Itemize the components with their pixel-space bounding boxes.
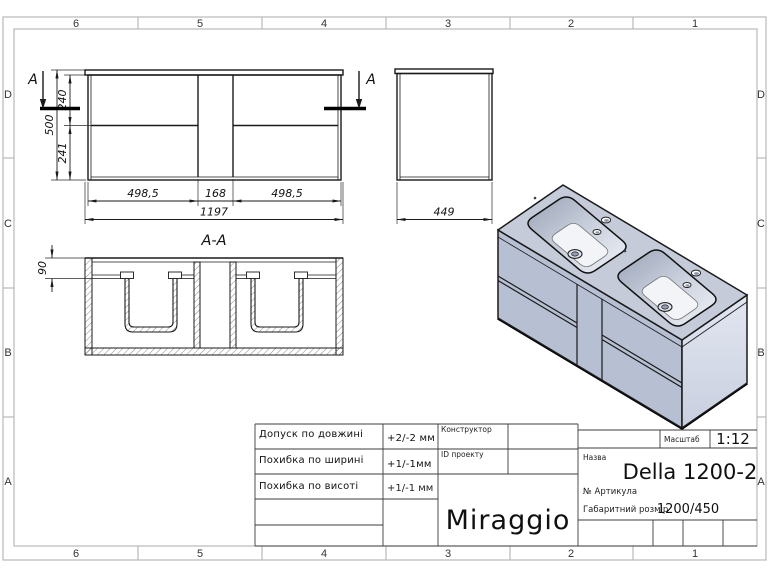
- zone-label: 6: [73, 548, 79, 560]
- scale-value: 1:12: [716, 430, 750, 448]
- drawing-canvas: 6 5 4 3 2 1 6 5 4 3 2 1 D C B A D C B A: [0, 0, 770, 578]
- section-label-left: A: [27, 72, 38, 88]
- dim-depth: 449: [434, 206, 455, 219]
- dim-width-total: 1197: [200, 206, 228, 219]
- zone-label: A: [4, 476, 12, 488]
- dim-basin-depth: 90: [36, 261, 49, 275]
- tolerance-value: +1/-1мм: [387, 459, 432, 470]
- zone-label: B: [4, 347, 11, 359]
- title-block: Допуск по довжині +2/-2 мм Похибка по ши…: [255, 424, 757, 546]
- section-dimension: 90: [36, 245, 92, 292]
- section-view: A-A: [36, 233, 343, 355]
- zone-label: 3: [445, 548, 451, 560]
- tolerance-label: Похибка по ширині: [259, 454, 364, 466]
- scale-label: Масштаб: [664, 435, 700, 444]
- dimensions-label: Габаритний розмір: [583, 505, 668, 515]
- tolerance-label: Допуск по довжині: [259, 428, 363, 440]
- front-view: [85, 70, 343, 180]
- project-id-label: ID проекту: [441, 450, 484, 459]
- zone-label: 4: [321, 548, 327, 560]
- dim-width-mid: 168: [205, 187, 226, 200]
- zone-label: A: [757, 476, 765, 488]
- constructor-label: Конструктор: [441, 425, 492, 434]
- tolerance-label: Похибка по висоті: [259, 480, 358, 492]
- article-label: № Артикула: [583, 487, 637, 497]
- tolerance-value: +1/-1 мм: [387, 483, 433, 494]
- zone-label: 4: [321, 18, 327, 30]
- zone-label: 1: [692, 18, 698, 30]
- zone-label: D: [757, 89, 765, 101]
- zone-label: 3: [445, 18, 451, 30]
- basin-section-left: [121, 272, 182, 332]
- dim-height-total: 500: [43, 115, 56, 136]
- tolerance-value: +2/-2 мм: [387, 433, 435, 444]
- name-label: Назва: [583, 453, 606, 462]
- zone-label: C: [4, 218, 12, 230]
- side-view: 449: [395, 69, 493, 224]
- section-view-title: A-A: [200, 233, 226, 249]
- section-label-right: A: [365, 72, 376, 88]
- zone-label: D: [4, 89, 12, 101]
- basin-section-right: [247, 272, 308, 332]
- zone-label: 5: [197, 548, 203, 560]
- dim-width-left: 498,5: [127, 187, 159, 200]
- section-cut-marks: A A: [27, 71, 376, 109]
- dim-height-bottom: 241: [56, 143, 69, 164]
- iso-view: [498, 185, 747, 428]
- dimensions-value: 1200/450: [657, 502, 719, 517]
- zone-label: 5: [197, 18, 203, 30]
- drawing-sheet: 6 5 4 3 2 1 6 5 4 3 2 1 D C B A D C B A: [0, 0, 770, 578]
- zone-label: 2: [568, 18, 574, 30]
- zone-label: 2: [568, 548, 574, 560]
- zone-label: C: [757, 218, 765, 230]
- zone-label: 6: [73, 18, 79, 30]
- tolerance-table: Допуск по довжині +2/-2 мм Похибка по ши…: [259, 428, 435, 494]
- zone-label: 1: [692, 548, 698, 560]
- dim-width-right: 498,5: [271, 187, 303, 200]
- brand-logo: Miraggio: [446, 505, 571, 536]
- zone-label: B: [757, 347, 764, 359]
- product-name: Della 1200-2: [623, 460, 758, 484]
